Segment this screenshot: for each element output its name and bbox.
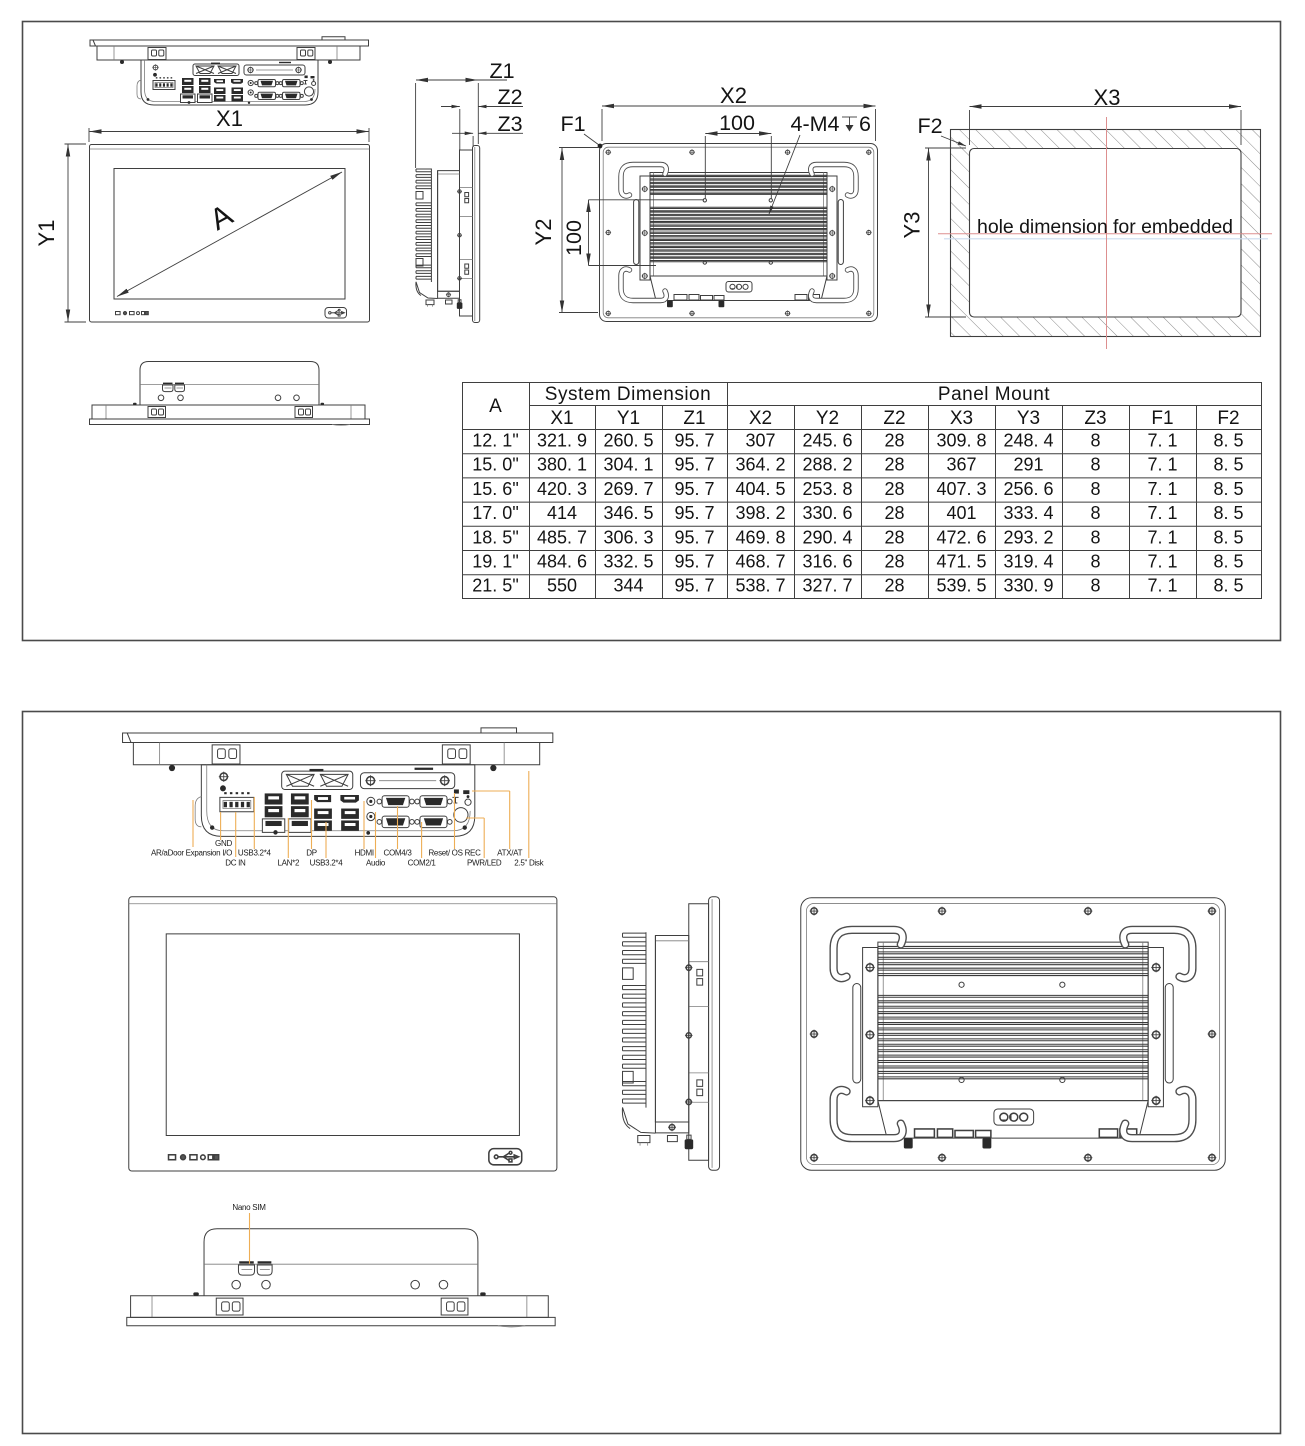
svg-text:307: 307 (745, 431, 775, 451)
svg-text:269. 7: 269. 7 (603, 479, 653, 499)
svg-text:404. 5: 404. 5 (735, 479, 785, 499)
svg-text:398. 2: 398. 2 (735, 503, 785, 523)
svg-text:95. 7: 95. 7 (674, 479, 714, 499)
svg-text:7. 1: 7. 1 (1147, 431, 1177, 451)
svg-text:Reset/ OS REC: Reset/ OS REC (428, 849, 481, 858)
svg-text:256. 6: 256. 6 (1003, 479, 1053, 499)
svg-text:538. 7: 538. 7 (735, 576, 785, 596)
svg-text:Audio: Audio (366, 859, 386, 868)
svg-text:15. 6": 15. 6" (472, 479, 518, 499)
svg-text:X3: X3 (1094, 85, 1121, 110)
svg-text:COM4/3: COM4/3 (384, 849, 413, 858)
svg-text:8: 8 (1090, 479, 1100, 499)
svg-text:367: 367 (946, 455, 976, 475)
svg-text:291: 291 (1013, 455, 1043, 475)
svg-text:GND: GND (215, 839, 232, 848)
svg-text:248. 4: 248. 4 (1003, 431, 1053, 451)
svg-text:X1: X1 (550, 408, 573, 429)
svg-text:ATX/AT: ATX/AT (497, 849, 522, 858)
svg-text:8: 8 (1090, 503, 1100, 523)
svg-text:8: 8 (1090, 552, 1100, 572)
svg-text:F1: F1 (1151, 408, 1173, 429)
svg-text:401: 401 (946, 503, 976, 523)
svg-text:319. 4: 319. 4 (1003, 552, 1053, 572)
svg-text:X2: X2 (720, 83, 747, 108)
svg-text:X3: X3 (950, 408, 973, 429)
svg-text:PWR/LED: PWR/LED (467, 859, 502, 868)
svg-text:7. 1: 7. 1 (1147, 527, 1177, 547)
svg-text:Z3: Z3 (497, 112, 522, 136)
svg-text:327. 7: 327. 7 (802, 576, 852, 596)
svg-text:8. 5: 8. 5 (1213, 552, 1243, 572)
svg-text:414: 414 (547, 503, 577, 523)
svg-text:LAN*2: LAN*2 (277, 859, 299, 868)
svg-text:6: 6 (859, 112, 871, 136)
svg-text:472. 6: 472. 6 (936, 527, 986, 547)
svg-text:28: 28 (884, 431, 904, 451)
svg-text:Y3: Y3 (1017, 408, 1040, 429)
svg-text:28: 28 (884, 455, 904, 475)
svg-text:330. 6: 330. 6 (802, 503, 852, 523)
svg-text:Panel Mount: Panel Mount (938, 384, 1050, 405)
svg-text:X2: X2 (749, 408, 772, 429)
svg-text:18. 5": 18. 5" (472, 527, 518, 547)
svg-text:95. 7: 95. 7 (674, 455, 714, 475)
svg-text:290. 4: 290. 4 (802, 527, 852, 547)
svg-text:420. 3: 420. 3 (537, 479, 587, 499)
svg-text:28: 28 (884, 527, 904, 547)
svg-text:468. 7: 468. 7 (735, 552, 785, 572)
svg-text:Y3: Y3 (900, 212, 925, 239)
svg-text:95. 7: 95. 7 (674, 431, 714, 451)
svg-text:8. 5: 8. 5 (1213, 431, 1243, 451)
svg-text:380. 1: 380. 1 (537, 455, 587, 475)
svg-text:8: 8 (1090, 527, 1100, 547)
svg-text:System Dimension: System Dimension (545, 384, 711, 405)
svg-text:28: 28 (884, 552, 904, 572)
svg-text:7. 1: 7. 1 (1147, 479, 1177, 499)
svg-text:550: 550 (547, 576, 577, 596)
svg-text:485. 7: 485. 7 (537, 527, 587, 547)
svg-text:F1: F1 (560, 112, 585, 136)
svg-text:28: 28 (884, 576, 904, 596)
svg-text:28: 28 (884, 503, 904, 523)
svg-text:8. 5: 8. 5 (1213, 455, 1243, 475)
svg-text:288. 2: 288. 2 (802, 455, 852, 475)
svg-text:344: 344 (613, 576, 643, 596)
svg-text:100: 100 (562, 220, 586, 256)
svg-text:8: 8 (1090, 455, 1100, 475)
svg-text:8. 5: 8. 5 (1213, 479, 1243, 499)
svg-text:8. 5: 8. 5 (1213, 527, 1243, 547)
svg-text:AR/aDoor Expansion I/O: AR/aDoor Expansion I/O (151, 849, 232, 858)
svg-text:USB3.2*4: USB3.2*4 (238, 849, 272, 858)
svg-text:A: A (205, 198, 239, 237)
svg-text:484. 6: 484. 6 (537, 552, 587, 572)
svg-text:Y2: Y2 (816, 408, 839, 429)
svg-text:X1: X1 (216, 106, 243, 131)
svg-text:333. 4: 333. 4 (1003, 503, 1053, 523)
svg-text:309. 8: 309. 8 (936, 431, 986, 451)
svg-text:A: A (489, 396, 502, 417)
svg-text:28: 28 (884, 479, 904, 499)
svg-text:12. 1": 12. 1" (472, 431, 518, 451)
svg-text:F2: F2 (917, 114, 942, 138)
svg-text:DC IN: DC IN (225, 859, 246, 868)
svg-text:469. 8: 469. 8 (735, 527, 785, 547)
svg-text:316. 6: 316. 6 (802, 552, 852, 572)
svg-text:7. 1: 7. 1 (1147, 576, 1177, 596)
svg-text:21. 5": 21. 5" (472, 576, 518, 596)
svg-text:4-M4: 4-M4 (791, 112, 840, 136)
svg-text:306. 3: 306. 3 (603, 527, 653, 547)
svg-text:95. 7: 95. 7 (674, 527, 714, 547)
svg-text:539. 5: 539. 5 (936, 576, 986, 596)
svg-text:COM2/1: COM2/1 (408, 859, 437, 868)
svg-text:7. 1: 7. 1 (1147, 552, 1177, 572)
svg-text:346. 5: 346. 5 (603, 503, 653, 523)
svg-text:304. 1: 304. 1 (603, 455, 653, 475)
svg-text:8. 5: 8. 5 (1213, 503, 1243, 523)
svg-text:8. 5: 8. 5 (1213, 576, 1243, 596)
svg-text:95. 7: 95. 7 (674, 503, 714, 523)
svg-text:HDMI: HDMI (355, 849, 374, 858)
svg-text:253. 8: 253. 8 (802, 479, 852, 499)
svg-text:Z1: Z1 (489, 59, 514, 83)
svg-text:8: 8 (1090, 576, 1100, 596)
svg-text:245. 6: 245. 6 (802, 431, 852, 451)
svg-text:DP: DP (306, 849, 317, 858)
svg-text:17. 0": 17. 0" (472, 503, 518, 523)
svg-text:Nano SIM: Nano SIM (232, 1203, 266, 1212)
svg-text:332. 5: 332. 5 (603, 552, 653, 572)
svg-text:8: 8 (1090, 431, 1100, 451)
svg-text:2.5" Disk: 2.5" Disk (514, 859, 544, 868)
svg-text:330. 9: 330. 9 (1003, 576, 1053, 596)
svg-text:7. 1: 7. 1 (1147, 503, 1177, 523)
svg-text:USB3.2*4: USB3.2*4 (310, 859, 344, 868)
svg-text:Z2: Z2 (497, 85, 522, 109)
svg-text:321. 9: 321. 9 (537, 431, 587, 451)
svg-text:Y2: Y2 (531, 219, 556, 246)
svg-text:Y1: Y1 (617, 408, 640, 429)
svg-text:364. 2: 364. 2 (735, 455, 785, 475)
svg-text:95. 7: 95. 7 (674, 576, 714, 596)
svg-text:Z2: Z2 (883, 408, 905, 429)
svg-text:Z3: Z3 (1084, 408, 1106, 429)
svg-text:hole dimension for embedded: hole dimension for embedded (977, 216, 1233, 238)
svg-text:95. 7: 95. 7 (674, 552, 714, 572)
svg-text:260. 5: 260. 5 (603, 431, 653, 451)
svg-text:15. 0": 15. 0" (472, 455, 518, 475)
svg-text:471. 5: 471. 5 (936, 552, 986, 572)
svg-text:7. 1: 7. 1 (1147, 455, 1177, 475)
svg-text:Y1: Y1 (34, 220, 59, 247)
svg-text:Z1: Z1 (683, 408, 705, 429)
svg-text:100: 100 (719, 111, 755, 135)
svg-text:407. 3: 407. 3 (936, 479, 986, 499)
svg-text:19. 1": 19. 1" (472, 552, 518, 572)
svg-text:293. 2: 293. 2 (1003, 527, 1053, 547)
svg-text:F2: F2 (1217, 408, 1239, 429)
